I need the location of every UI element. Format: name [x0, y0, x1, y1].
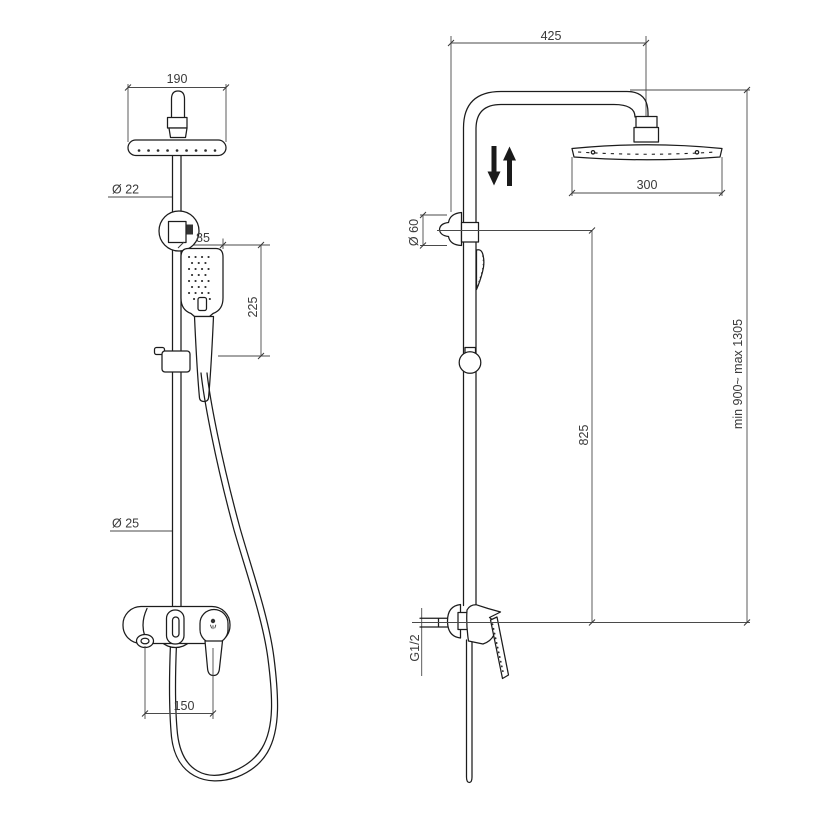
- dim-total-height-label: min 900~ max 1305: [731, 319, 745, 429]
- dim-head-diameter-label: 300: [637, 178, 658, 192]
- shower-icon: [211, 619, 215, 623]
- front-wall-bracket: [159, 211, 199, 251]
- front-shower-arm: [168, 91, 188, 138]
- side-view: [412, 36, 750, 783]
- side-column-pipe: [464, 92, 649, 606]
- mixer-lever-side: [491, 617, 509, 679]
- side-overhead-shower: [572, 145, 722, 160]
- dim-bracket-diameter-label: Ø 60: [407, 219, 421, 246]
- mixer-diverter: [167, 610, 185, 644]
- dim-rail-diameter-label: Ø 25: [112, 517, 139, 531]
- side-shower-hose: [467, 640, 473, 783]
- mixer-lever-base: [200, 610, 228, 644]
- front-slider-holder: [155, 348, 191, 373]
- side-wall-bracket: [440, 213, 479, 246]
- height-adjust-arrows: [488, 146, 517, 186]
- dim-handshower-width-label: 85: [196, 231, 210, 245]
- side-mixer: [420, 605, 509, 679]
- dim-arm-reach-label: 425: [541, 29, 562, 43]
- hand-shower-handle: [195, 317, 214, 402]
- dim-pipe-diameter-label: Ø 22: [112, 183, 139, 197]
- front-mixer: [123, 607, 230, 676]
- dim-thread-label: G1/2: [408, 634, 422, 661]
- dim-head-width-label: 190: [167, 72, 188, 86]
- dim-bracket-height-label: 825: [577, 425, 591, 446]
- side-slider-knob: [459, 348, 481, 374]
- arrow-down-icon: [488, 146, 501, 186]
- side-head-connector: [634, 117, 659, 143]
- arrow-up-icon: [503, 147, 516, 187]
- side-hand-shower: [477, 250, 484, 290]
- mixer-lever-grip: [205, 641, 223, 676]
- hand-shower-mode-button: [198, 298, 207, 311]
- front-overhead-shower: [128, 140, 226, 156]
- dim-handshower-length-label: 225: [246, 297, 260, 318]
- mixer-hose-outlet: [137, 635, 154, 648]
- bracket-clip: [187, 225, 194, 235]
- shower-drawing: 190 Ø 22 85 225 Ø 25 150 425 300 Ø 60 82…: [0, 0, 826, 826]
- front-shower-hose: [170, 373, 278, 781]
- dim-inlet-spacing-label: 150: [174, 699, 195, 713]
- technical-drawing-sheet: 190 Ø 22 85 225 Ø 25 150 425 300 Ø 60 82…: [0, 0, 826, 826]
